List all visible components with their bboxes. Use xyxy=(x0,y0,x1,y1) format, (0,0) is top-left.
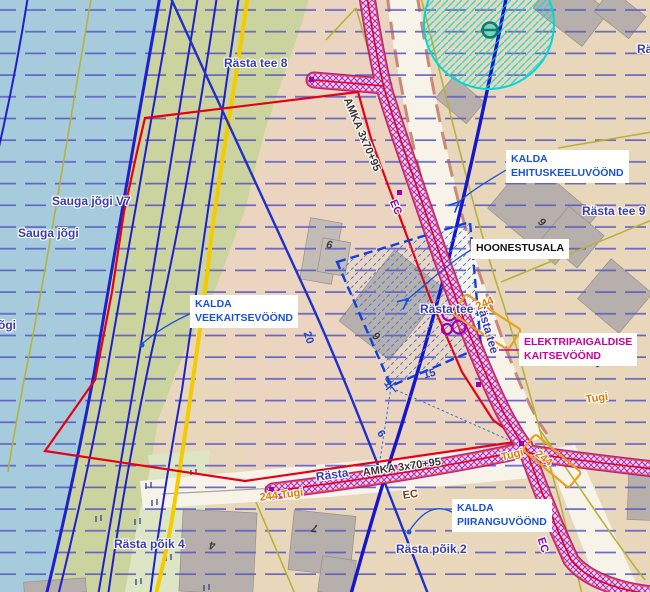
water-label-sauga-jogi-v7: Sauga jõgi V7 xyxy=(52,194,131,208)
annotation-line: PIIRANGUVÖÖND xyxy=(457,516,547,530)
annotation-line: HOONESTUSALA xyxy=(476,242,564,256)
annotation-line: KALDA xyxy=(511,153,624,167)
annotation-line: KALDA xyxy=(195,298,293,312)
street-label-rasta-tee-8: Rästa tee 8 xyxy=(224,56,287,70)
street-label-rasta-poik-2: Rästa põik 2 xyxy=(396,542,467,556)
annotation-line: ELEKTRIPAIGALDISE xyxy=(524,336,632,350)
map-canvas[interactable] xyxy=(0,0,650,592)
annotation-ehituskeeluvoond: KALDA EHITUSKEELUVÖÖND xyxy=(506,150,629,183)
annotation-line: KALDA xyxy=(457,502,547,516)
street-label-rasta-tee: Rästa tee xyxy=(420,302,473,316)
annotation-veekaitsevoond: KALDA VEEKAITSEVÖÖND xyxy=(190,295,298,328)
street-label-ra-partial: Rä xyxy=(637,42,650,56)
annotation-piiranguvoond: KALDA PIIRANGUVÖÖND xyxy=(452,499,552,532)
annotation-line: KAITSEVÖÖND xyxy=(524,350,632,364)
planning-map: Rästa tee 8 Rästa tee 9 Rä Rästa tee 6 R… xyxy=(0,0,650,592)
annotation-elektripaigaldise: ELEKTRIPAIGALDISE KAITSEVÖÖND xyxy=(519,333,637,366)
water-label-ogi-partial: õgi xyxy=(0,318,16,332)
street-label-rasta-poik-4: Rästa põik 4 xyxy=(114,537,185,551)
annotation-line: VEEKAITSEVÖÖND xyxy=(195,312,293,326)
annotation-hoonestusala: HOONESTUSALA xyxy=(471,239,569,259)
street-label-rasta-tee-9: Rästa tee 9 xyxy=(582,204,645,218)
water-label-sauga-jogi: Sauga jõgi xyxy=(18,226,79,240)
powerline-label-ec-horizontal: EC xyxy=(402,488,419,502)
annotation-line: EHITUSKEELUVÖÖND xyxy=(511,167,624,181)
building-number-4-bottom: 4 xyxy=(209,539,216,551)
